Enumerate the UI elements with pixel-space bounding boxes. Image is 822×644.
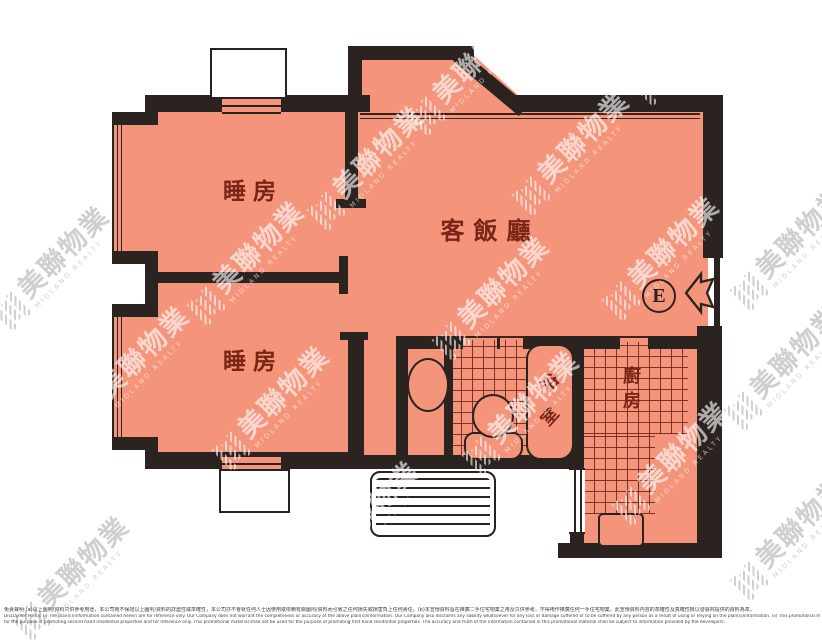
bedroom1-bay-window [112, 125, 159, 251]
washbasin [407, 358, 449, 412]
wall-bedroom1-right [345, 106, 358, 202]
wall-bathroom-divider [444, 348, 453, 458]
bay2-cap-top [112, 304, 157, 317]
bedroom2-outer-window-box [219, 469, 290, 513]
midland-logo-icon [729, 271, 769, 311]
bathroom-door-threshold [462, 336, 525, 338]
bathroom-door-jamb1 [460, 338, 463, 349]
disclaimer-line-zh: 免責聲明:(a)以上圖則/資料只供參考用途，本公司概不保證以上圖則/資料的詳盡性… [4, 607, 820, 614]
wall-bathroom-left [396, 336, 408, 458]
bay1-cap-top [112, 112, 157, 125]
living-dining-label: 客飯廳 [400, 211, 580, 246]
kitchen-label: 廚房 [617, 366, 643, 416]
bedroom1-window-symbol [222, 97, 281, 114]
watermark-subtext: MIDLAND REALTY [772, 493, 822, 580]
wall-bedrooms-middle-cap [339, 256, 348, 294]
kitchen-door-threshold [620, 336, 648, 338]
watermark-stamp: 美聯物業MIDLAND REALTY [721, 302, 822, 433]
floor-plan-canvas: E 睡房 睡房 客飯廳 浴室 廚房 美聯物業MIDLAND REALTY美聯物業… [0, 0, 822, 640]
kitchen-sink [598, 513, 644, 547]
watermark-text: 美聯物業 [13, 202, 114, 303]
living-beam-line [360, 113, 700, 115]
watermark-text: 美聯物業 [751, 472, 822, 573]
bedroom1-outer-window-box [210, 48, 287, 99]
bathroom-door-jamb2 [497, 338, 500, 349]
entrance-letter: E [652, 285, 665, 308]
ac-platform [370, 471, 496, 537]
disclaimer-line-en2: for the purpose of promoting second hand… [4, 620, 820, 626]
watermark-text: 美聯物業 [33, 512, 134, 613]
wall-living-right [703, 95, 723, 258]
toilet-bowl [472, 394, 514, 438]
wall-living-top [515, 95, 723, 112]
wall-kitchen-top-b [648, 336, 700, 349]
entrance-marker: E [642, 279, 676, 313]
midland-logo-icon [301, 546, 341, 586]
watermark-text: 美聯物業 [745, 302, 822, 403]
bedroom2-bay-window [112, 317, 159, 437]
wall-bedrooms-middle [157, 272, 339, 283]
watermark-subtext: MIDLAND REALTY [766, 323, 822, 410]
watermark-text: 美聯物業 [653, 0, 754, 78]
watermark-stamp: 美聯物業MIDLAND REALTY [629, 0, 760, 108]
watermark-text: 美聯物業 [751, 182, 822, 283]
disclaimer: 免責聲明:(a)以上圖則/資料只供參考用途，本公司概不保證以上圖則/資料的詳盡性… [4, 607, 820, 627]
watermark-subtext: MIDLAND REALTY [772, 203, 822, 290]
midland-logo-icon [71, 391, 111, 431]
wall-bedroom1-right-cap [336, 199, 366, 208]
kitchen-tiles-lower [583, 434, 655, 514]
wall-kitchen-right [697, 326, 722, 554]
bedroom2-label: 睡房 [173, 342, 333, 376]
midland-logo-icon [0, 291, 32, 331]
entrance-arrow-icon [685, 270, 715, 316]
bedroom1-label: 睡房 [173, 172, 333, 206]
midland-logo-icon [729, 561, 769, 601]
kitchen-window [569, 468, 585, 534]
wall-bedroom2-right-cap [340, 332, 368, 340]
watermark-subtext: MIDLAND REALTY [674, 0, 761, 84]
bathroom-label: 浴室 [540, 360, 557, 437]
living-beam-line2 [360, 118, 700, 119]
bay1-cap-bottom [112, 251, 157, 264]
watermark-subtext: MIDLAND REALTY [34, 223, 121, 310]
watermark-stamp: 美聯物業MIDLAND REALTY [727, 472, 822, 603]
midland-logo-icon [723, 391, 763, 431]
wall-bedroom2-right [348, 336, 364, 466]
watermark-stamp: 美聯物業MIDLAND REALTY [727, 182, 822, 313]
bay2-cap-bottom [112, 437, 157, 450]
watermark-stamp: 美聯物業MIDLAND REALTY [0, 202, 121, 333]
